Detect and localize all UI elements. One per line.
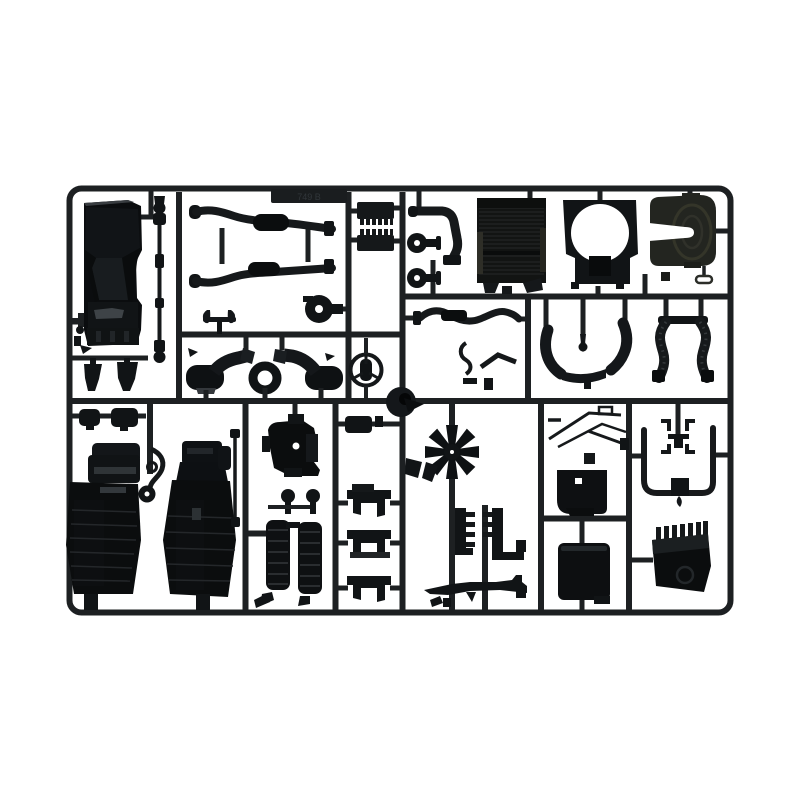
svg-text:749 B: 749 B (297, 192, 321, 202)
